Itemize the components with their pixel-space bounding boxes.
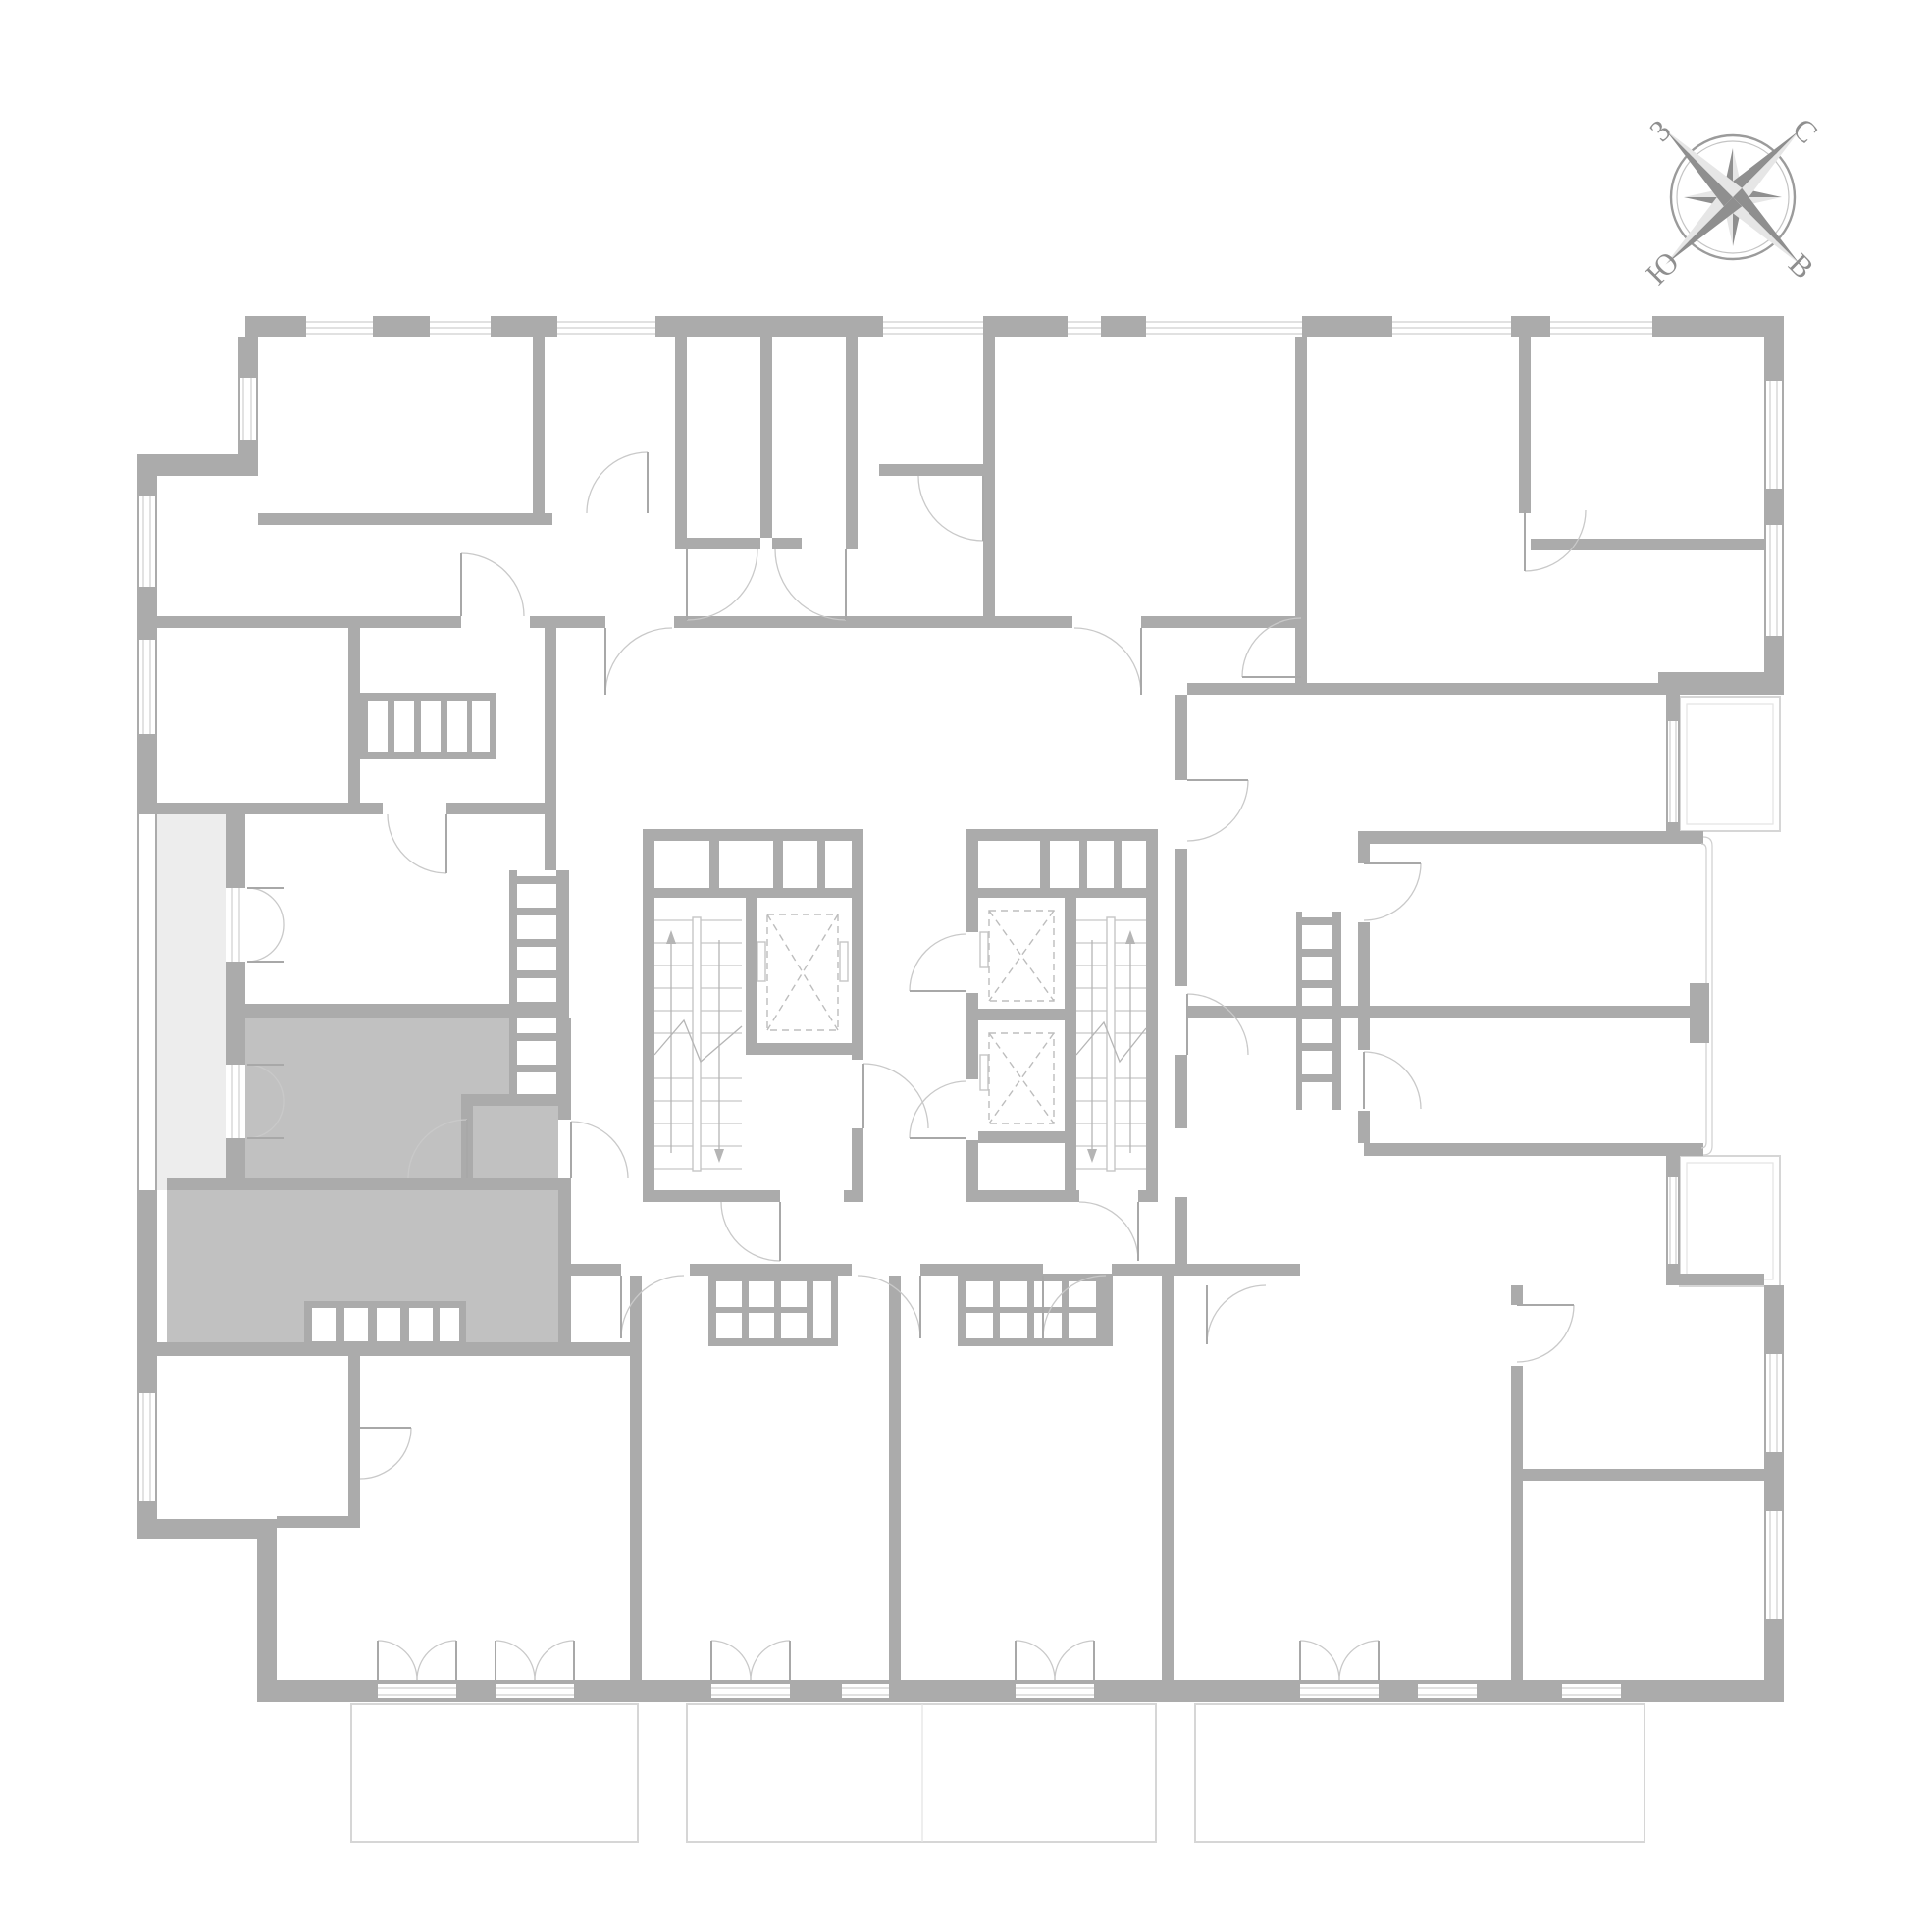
door-swing [388, 814, 446, 873]
french-door [378, 1641, 456, 1698]
compass-star [1656, 121, 1809, 274]
french-door [1016, 1641, 1094, 1698]
compass-west-label: З [1643, 113, 1678, 148]
stair-core-right [966, 829, 1158, 1202]
door-swing [605, 628, 672, 695]
door-swing [910, 1081, 966, 1138]
shaft-grid [958, 1274, 1113, 1346]
elevator-icon [980, 911, 1054, 1001]
door-swing [1207, 1285, 1266, 1344]
compass-north-label: С [1786, 111, 1824, 149]
door-swing [1517, 1305, 1574, 1362]
floor-plan-page: С В Ю З [0, 0, 1932, 1932]
shaft-grid [304, 1301, 466, 1348]
compass-rose-icon: С В Ю З [1639, 111, 1824, 290]
door-swing [721, 1202, 780, 1261]
french-door [1300, 1641, 1379, 1698]
door-swing [1364, 1052, 1421, 1109]
door-swing [1187, 780, 1248, 841]
stairs-icon [654, 917, 742, 1171]
shaft-grid [360, 693, 496, 759]
door-swing [910, 934, 966, 991]
door-swing [687, 549, 757, 620]
door-swing [587, 452, 648, 513]
elevator-icon [757, 914, 848, 1030]
french-door [711, 1641, 790, 1698]
floor-plan-canvas: С В Ю З [0, 0, 1932, 1932]
stairs-icon [1076, 917, 1146, 1171]
door-swing [1364, 863, 1421, 920]
door-swing [918, 476, 983, 541]
door-swing [1187, 994, 1248, 1055]
shaft-grid [708, 1274, 838, 1346]
door-swing [360, 1428, 411, 1479]
elevator-icon [980, 1033, 1054, 1123]
french-door [247, 888, 284, 962]
door-swing [775, 549, 846, 620]
door-swing [571, 1122, 628, 1178]
french-door [496, 1641, 574, 1698]
stair-core-left [643, 829, 863, 1202]
door-swing [1074, 628, 1141, 695]
door-swing [461, 553, 524, 616]
door-swing [1079, 1202, 1138, 1261]
door-swing [863, 1064, 928, 1128]
interior-walls [157, 337, 1764, 1680]
